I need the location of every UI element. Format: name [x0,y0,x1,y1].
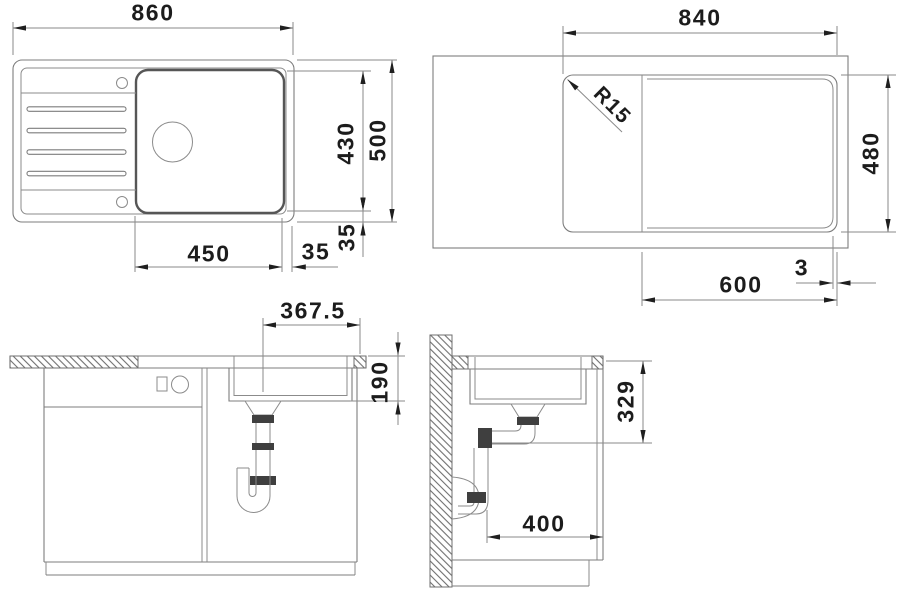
trap-nut [250,476,276,485]
worktop-outline [433,56,848,248]
sink-technical-drawing: 860 430 500 450 35 35 840 R15 480 600 3 … [0,0,900,600]
trap-outer [237,468,270,512]
worktop-hatch-back [452,356,468,369]
dim-label-bowl-offset-bottom: 35 [334,223,361,252]
outlet-nut [478,428,492,448]
dim-label-outlet-height: 329 [613,379,640,422]
top-view-sink [13,60,294,222]
strainer-nut [252,415,274,423]
drawing-canvas [0,0,900,600]
dim-label-overall-width: 860 [131,0,174,27]
dim-label-cutout-width: 840 [678,5,721,32]
worktop-hatch-front [592,356,603,369]
tap-hole [117,78,128,89]
strainer [245,401,281,415]
worktop-hatch-left [10,356,138,368]
strainer-nut-side [517,417,539,425]
dim-label-bowl-offset-right: 35 [302,239,331,266]
wall-socket-nut [467,492,486,503]
dim-label-drain-to-edge: 367.5 [280,298,346,325]
cutout-view [433,56,848,248]
cabinet-detail-knob [172,376,189,393]
wall-hatch [430,335,452,587]
drainboard-ridge [27,171,126,176]
drain-hole [153,122,193,162]
dim-label-edge-gap: 3 [795,255,809,282]
drainboard-ridge [27,150,126,155]
drainboard-ridge [27,107,126,112]
dim-label-bowl-width: 450 [187,241,230,268]
dim-label-bowl-depth: 430 [333,121,360,164]
pipe-nut [252,443,274,450]
bowl-inner-side [475,357,581,399]
dim-label-cutout-depth: 480 [858,131,885,174]
bowl-inner [234,356,347,396]
bowl-outer [229,368,352,401]
tap-hole [117,197,128,208]
sink-inset-outline [647,79,833,228]
worktop-hatch-right [354,356,366,368]
front-view [10,356,366,575]
cutout-view-dimensions [563,26,896,306]
dim-label-bowl-zone-width: 600 [719,272,762,299]
side-view [430,335,603,587]
dim-label-bowl-inner-depth: 190 [367,360,394,403]
dim-label-outlet-to-front: 400 [522,511,565,538]
strainer-side [511,404,545,417]
dim-label-overall-depth: 500 [365,118,392,161]
cabinet-detail-square [157,377,167,391]
drainboard-ridge [27,128,126,133]
